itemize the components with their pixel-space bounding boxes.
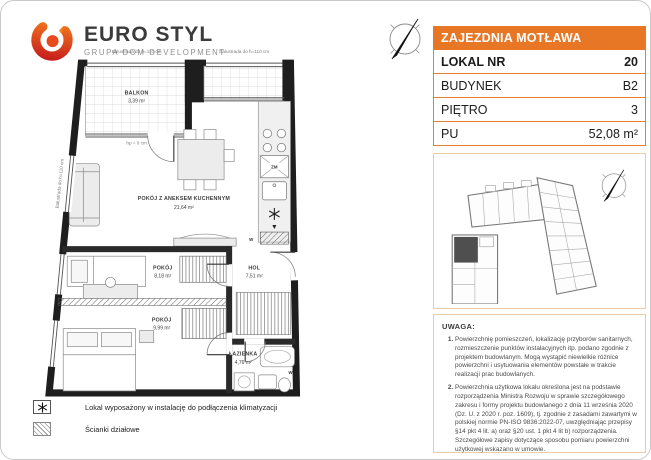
- notes-list: Powierzchnię pomieszczeń, lokalizację pr…: [455, 336, 637, 460]
- info-row-budynek: BUDYNEK B2: [433, 74, 646, 98]
- room-area-hall: 7,51 m²: [246, 273, 263, 279]
- info-row-pietro: PIĘTRO 3: [433, 98, 646, 122]
- hatch-swatch-icon: [33, 422, 51, 436]
- room-label-living: POKÓJ Z ANEKSEM KUCHENNYM: [138, 194, 231, 202]
- plan-legend: Lokal wyposażony w instalację do podłącz…: [33, 400, 277, 444]
- note-item: Powierzchnię pomieszczeń, lokalizację pr…: [455, 336, 637, 380]
- shaft: [260, 232, 288, 244]
- legend-partitions-text: Ścianki działowe: [85, 425, 140, 434]
- loggia: [204, 56, 291, 101]
- north-arrow-small-icon: [602, 170, 626, 202]
- info-value: 3: [631, 103, 638, 117]
- info-row-pu: PU 52,08 m²: [433, 122, 646, 146]
- room-label-balkon: BALKON: [125, 90, 149, 96]
- kitchen-annex: [258, 101, 290, 244]
- notes-heading: UWAGA:: [442, 322, 637, 331]
- info-label: PIĘTRO: [441, 103, 488, 117]
- legend-ac-text: Lokal wyposażony w instalację do podłącz…: [85, 403, 277, 412]
- ac-asterisk-icon: [33, 400, 51, 414]
- balcony: [85, 56, 204, 137]
- hp-label: hp = 0 cm: [126, 141, 147, 146]
- north-arrow-icon: [380, 12, 430, 64]
- room-area-bedroom2: 9,99 m²: [153, 326, 170, 332]
- info-row-lokal: LOKAL NR 20: [433, 50, 646, 74]
- legend-item-ac: Lokal wyposażony w instalację do podłącz…: [33, 400, 277, 414]
- balustrade-label-right: Balustrada do h=110 cm: [219, 49, 269, 54]
- balustrade-label-left: Balustrada do h=110 cm: [112, 49, 162, 54]
- unit-info-table: ZAJEZDNIA MOTŁAWA LOKAL NR 20 BUDYNEK B2…: [433, 26, 646, 146]
- room-label-bedroom2: POKÓJ: [152, 316, 172, 324]
- sink: [262, 182, 286, 200]
- room-area-living: 21,64 m²: [174, 205, 194, 211]
- notes-box: UWAGA: Powierzchnię pomieszczeń, lokaliz…: [433, 314, 646, 453]
- balustrade-label-side: Balustrada do h=110 cm: [55, 158, 65, 208]
- room-label-bathroom: ŁAZIENKA: [229, 352, 257, 358]
- room-area-bathroom: 4,76 m²: [235, 360, 252, 366]
- info-label: PU: [441, 127, 458, 141]
- floor-plan: Balustrada do h=110 cm Balustrada do h=1…: [31, 41, 383, 403]
- room-label-bedroom1: POKÓJ: [153, 263, 173, 271]
- project-title: ZAJEZDNIA MOTŁAWA: [433, 26, 646, 50]
- unit-highlight: [454, 237, 478, 263]
- note-item: Powierzchnia użytkowa lokalu określona j…: [455, 384, 637, 455]
- lokal-card: EURO STYL GRUPA DOM DEVELOPMENT: [0, 0, 651, 460]
- room-area-bedroom1: 8,18 m²: [154, 273, 171, 279]
- site-plan-box: [433, 153, 646, 309]
- info-label: BUDYNEK: [441, 79, 501, 93]
- hall-wardrobe: [236, 292, 290, 334]
- info-value: B2: [623, 79, 638, 93]
- room-label-hall: HOL: [248, 265, 260, 271]
- legend-item-partitions: Ścianki działowe: [33, 422, 277, 436]
- info-label: LOKAL NR: [441, 55, 505, 69]
- room-area-balkon: 3,39 m²: [128, 98, 145, 104]
- info-value: 52,08 m²: [589, 127, 638, 141]
- zm-label: ZM: [271, 165, 278, 170]
- highlighted-building: [452, 235, 497, 304]
- building-footprint: [438, 158, 641, 304]
- info-value: 20: [624, 55, 638, 69]
